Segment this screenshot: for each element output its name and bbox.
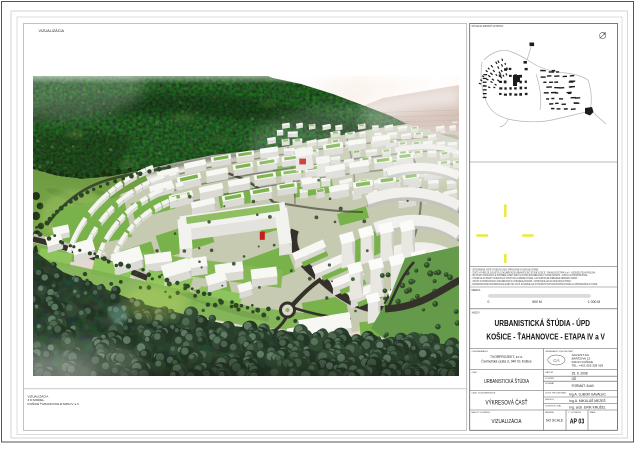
svg-text:URBANISTICKÁ ŠTÚDIA - ÚPD: URBANISTICKÁ ŠTÚDIA - ÚPD <box>495 319 591 328</box>
svg-text:VÝKRESOVÁ ČASŤ: VÝKRESOVÁ ČASŤ <box>486 398 528 406</box>
svg-text:- TENTO VYKRES JE SUCASTOU DOK: - TENTO VYKRES JE SUCASTOU DOKUMENTACIE … <box>471 271 595 274</box>
svg-text:GENERALNY PROJEKTANT: GENERALNY PROJEKTANT <box>545 350 574 353</box>
svg-text:KOŠICE - ŤAHANOVCE - ETAPA IV: KOŠICE - ŤAHANOVCE - ETAPA IV a V <box>486 332 605 341</box>
svg-text:NAZOV: NAZOV <box>472 311 480 314</box>
svg-text:CAST DOKUMENTACIE: CAST DOKUMENTACIE <box>472 391 496 394</box>
svg-text:ZODP. PROJEKTANT: ZODP. PROJEKTANT <box>545 391 567 394</box>
svg-text:500 M: 500 M <box>532 300 542 304</box>
svg-text:- UPOZORNENIE: VSETKY PODKLADY: - UPOZORNENIE: VSETKY PODKLADY BOLI SPRA… <box>471 268 538 271</box>
svg-text:GA: GA <box>553 358 560 363</box>
svg-text:VIZUALIZÁCIA: VIZUALIZÁCIA <box>492 418 522 425</box>
svg-text:Ing.A. MIKULÁŠ MEZEŠ: Ing.A. MIKULÁŠ MEZEŠ <box>569 398 606 403</box>
svg-text:FORMÁT: 3xA0: FORMÁT: 3xA0 <box>572 384 594 388</box>
svg-text:MIERKA: MIERKA <box>545 411 554 414</box>
svg-text:1 000 M: 1 000 M <box>588 300 600 304</box>
svg-text:KOŠICE ŤAHANOVCE ETAPA IV a V: KOŠICE ŤAHANOVCE ETAPA IV a V <box>28 401 80 406</box>
svg-text:KONTROLOVAL: KONTROLOVAL <box>545 404 562 407</box>
svg-text:SITUACIA SIRSICH VZTAHOV: SITUACIA SIRSICH VZTAHOV <box>472 25 504 28</box>
svg-text:- VSETKY AUTORSKE PRAVA K DOKU: - VSETKY AUTORSKE PRAVA K DOKUMENTACII S… <box>471 280 571 283</box>
svg-text:AP 03: AP 03 <box>570 417 585 426</box>
svg-text:PARE: PARE <box>590 411 596 414</box>
svg-text:CAST: CAST <box>472 371 478 374</box>
svg-text:Ing.A. ĽUBOR GAVALEC: Ing.A. ĽUBOR GAVALEC <box>569 393 607 397</box>
svg-text:MIERKA: MIERKA <box>472 289 481 292</box>
svg-text:ÚŠ: ÚŠ <box>572 376 576 381</box>
svg-text:Ing. arch. ERIK KRUŽEL: Ing. arch. ERIK KRUŽEL <box>569 405 605 410</box>
svg-text:FORMAT: FORMAT <box>545 382 555 385</box>
svg-text:VIZUALIZÁCIA: VIZUALIZÁCIA <box>39 29 65 33</box>
svg-text:- VYKRES NIE JE URCENY NA REAL: - VYKRES NIE JE URCENY NA REALIZACIU STA… <box>471 277 577 280</box>
svg-text:- ROZMNOZOVANIE DOKUMENTACIE A: - ROZMNOZOVANIE DOKUMENTACIE ALEBO JEJ C… <box>471 283 597 286</box>
svg-text:Čermeľská cesta 3, 040 01 Koši: Čermeľská cesta 3, 040 01 Košice <box>481 359 531 364</box>
svg-text:DATUM: DATUM <box>545 371 553 374</box>
svg-text:NAZOV VYKRESU: NAZOV VYKRESU <box>472 411 491 414</box>
svg-text:URBANISTICKÁ ŠTÚDIA: URBANISTICKÁ ŠTÚDIA <box>484 378 529 385</box>
svg-text:- PRI POUZITI PODKLADOV JE POT: - PRI POUZITI PODKLADOV JE POTREBNE UVIE… <box>471 274 587 277</box>
svg-text:C. VYKRESU: C. VYKRESU <box>568 412 582 414</box>
svg-text:TEL: +421 055 328 029: TEL: +421 055 328 029 <box>572 363 604 367</box>
svg-text:KRESLIL: KRESLIL <box>545 399 555 401</box>
svg-text:0: 0 <box>488 300 490 304</box>
svg-text:25. 9. 2008: 25. 9. 2008 <box>572 371 588 375</box>
svg-text:NO SCALE: NO SCALE <box>546 419 564 423</box>
svg-text:STUPEN: STUPEN <box>545 378 554 380</box>
svg-text:OBSTARAVATEL: OBSTARAVATEL <box>472 350 490 353</box>
svg-text:TVORPROJEKT, s.r.o.: TVORPROJEKT, s.r.o. <box>490 355 523 359</box>
